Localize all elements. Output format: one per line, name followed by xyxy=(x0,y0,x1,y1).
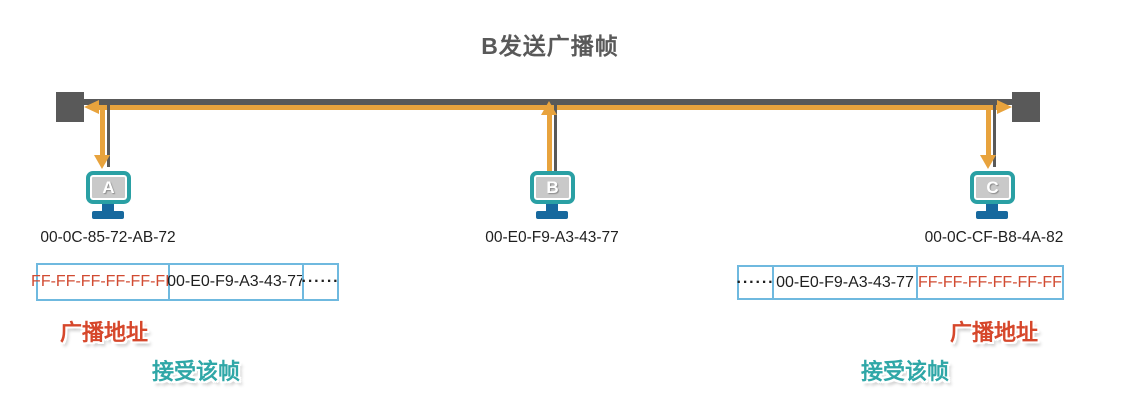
frame-c-payload-ellipsis: ······ xyxy=(737,265,774,300)
frame-a-payload-ellipsis: ······ xyxy=(302,263,339,301)
mac-address-a: 00-0C-85-72-AB-72 xyxy=(40,229,175,247)
computer-c-stand-base xyxy=(976,211,1008,219)
computer-a-stand-neck xyxy=(102,204,114,211)
signal-drop-b xyxy=(547,114,552,172)
accept-frame-label-left: 接受该帧 xyxy=(152,354,240,386)
frame-a-source-address: 00-E0-F9-A3-43-77 xyxy=(168,263,304,301)
bus-terminator-right xyxy=(1012,92,1040,122)
broadcast-address-label-right: 广播地址 xyxy=(950,315,1038,347)
computer-b-stand-neck xyxy=(546,204,558,211)
broadcast-frame-diagram: B发送广播帧 A 00-0C-85-72-AB-72 B 00-E0-F9-A3… xyxy=(0,0,1131,417)
broadcast-address-label-left: 广播地址 xyxy=(60,315,148,347)
frame-at-a: FF-FF-FF-FF-FF-FF 00-E0-F9-A3-43-77 ····… xyxy=(36,263,339,301)
computer-a-label: A xyxy=(102,179,114,196)
mac-address-b: 00-E0-F9-A3-43-77 xyxy=(485,229,619,247)
accept-frame-label-right: 接受该帧 xyxy=(861,354,949,386)
computer-c-label: C xyxy=(986,179,998,196)
signal-drop-c xyxy=(986,108,991,156)
diagram-title: B发送广播帧 xyxy=(481,27,619,61)
signal-arrowhead-up-b-icon xyxy=(541,101,557,115)
computer-b-icon: B xyxy=(530,171,575,204)
computer-c-stand-neck xyxy=(986,204,998,211)
frame-at-c: ······ 00-E0-F9-A3-43-77 FF-FF-FF-FF-FF-… xyxy=(737,265,1064,300)
frame-c-source-address: 00-E0-F9-A3-43-77 xyxy=(772,265,918,300)
frame-c-destination-address: FF-FF-FF-FF-FF-FF xyxy=(916,265,1064,300)
signal-drop-a xyxy=(100,108,105,156)
computer-b-label: B xyxy=(546,179,558,196)
computer-a-icon: A xyxy=(86,171,131,204)
bus-terminator-left xyxy=(56,92,84,122)
mac-address-c: 00-0C-CF-B8-4A-82 xyxy=(925,229,1064,247)
computer-c-icon: C xyxy=(970,171,1015,204)
computer-b-stand-base xyxy=(536,211,568,219)
computer-a-stand-base xyxy=(92,211,124,219)
signal-arrowhead-down-a-icon xyxy=(94,155,110,169)
signal-arrowhead-right-icon xyxy=(997,100,1012,114)
signal-arrowhead-left-icon xyxy=(84,100,99,114)
drop-cable-b xyxy=(554,105,557,172)
signal-arrowhead-down-c-icon xyxy=(980,155,996,169)
frame-a-destination-address: FF-FF-FF-FF-FF-FF xyxy=(36,263,170,301)
